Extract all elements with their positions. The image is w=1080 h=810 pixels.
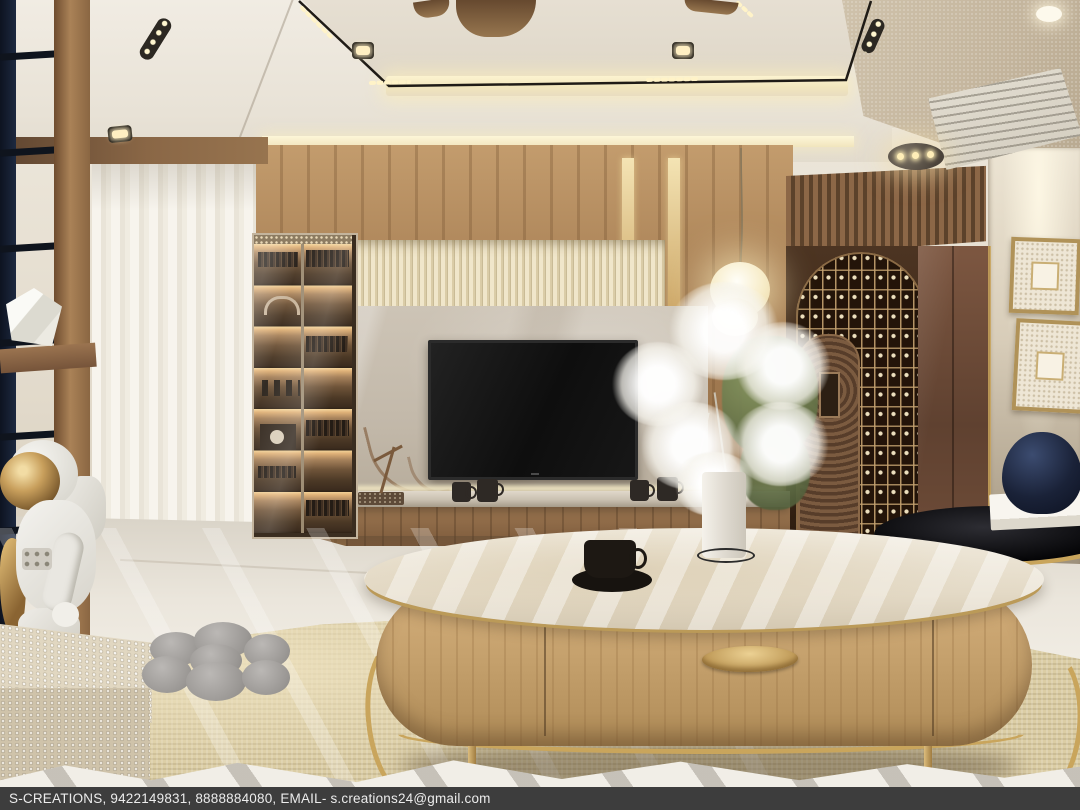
drawer-seam [932,618,934,736]
living-room-render: S-CREATIONS, 9422149831, 8888884080, EMA… [0,0,1080,810]
white-blossoms [736,322,830,410]
bonsai-decor-base [358,492,404,505]
art-center-tile [1035,351,1064,380]
wall-mounted-tv [428,340,638,480]
cabinet-top-trim [254,235,352,244]
watermark-text: S-CREATIONS, 9422149831, 8888884080, EMA… [0,791,491,806]
flower-floor-cushion [142,622,294,702]
spot-bulb [897,153,904,160]
coffee-mug [452,482,471,502]
watermark-bar: S-CREATIONS, 9422149831, 8888884080, EMA… [0,787,1080,810]
black-espresso-cup [584,540,636,578]
cushion-petal [142,656,192,693]
astronaut-glove [52,602,79,627]
white-curtain [92,160,256,522]
door-seam [952,246,954,544]
spot-bulb [927,151,934,158]
cushion-petal [242,660,290,695]
downlight-bulb [676,46,690,55]
lit-wall-groove [668,158,680,310]
astronaut-chest-panel [22,548,52,570]
coffee-mug [477,479,498,502]
tv-logo [531,473,539,475]
cove-light-strip [386,76,848,96]
downlight-bulb [112,129,129,139]
recessed-downlight [672,42,694,59]
fluted-wall-panel [350,240,665,314]
wall-art-frame [1009,237,1080,315]
cabinet-glass-door [254,244,352,533]
bronze-door [918,246,990,544]
vase-black-ring [697,548,755,563]
blue-glass-vase [1002,432,1080,514]
recessed-downlight [352,42,374,59]
recessed-downlight [107,125,133,143]
oval-spotlight-fixture [888,143,944,170]
ceiling-light-corner [1036,6,1062,22]
drawer-seam [544,618,546,736]
art-center-tile [1031,262,1060,291]
cushion-petal [186,662,246,701]
coffee-mug [630,480,649,501]
wall-art-frame [1012,318,1080,414]
downlight-bulb [356,46,370,55]
wood-slat-panel [786,164,986,256]
spot-bulb [912,152,919,159]
white-cylinder-vase [702,472,746,558]
